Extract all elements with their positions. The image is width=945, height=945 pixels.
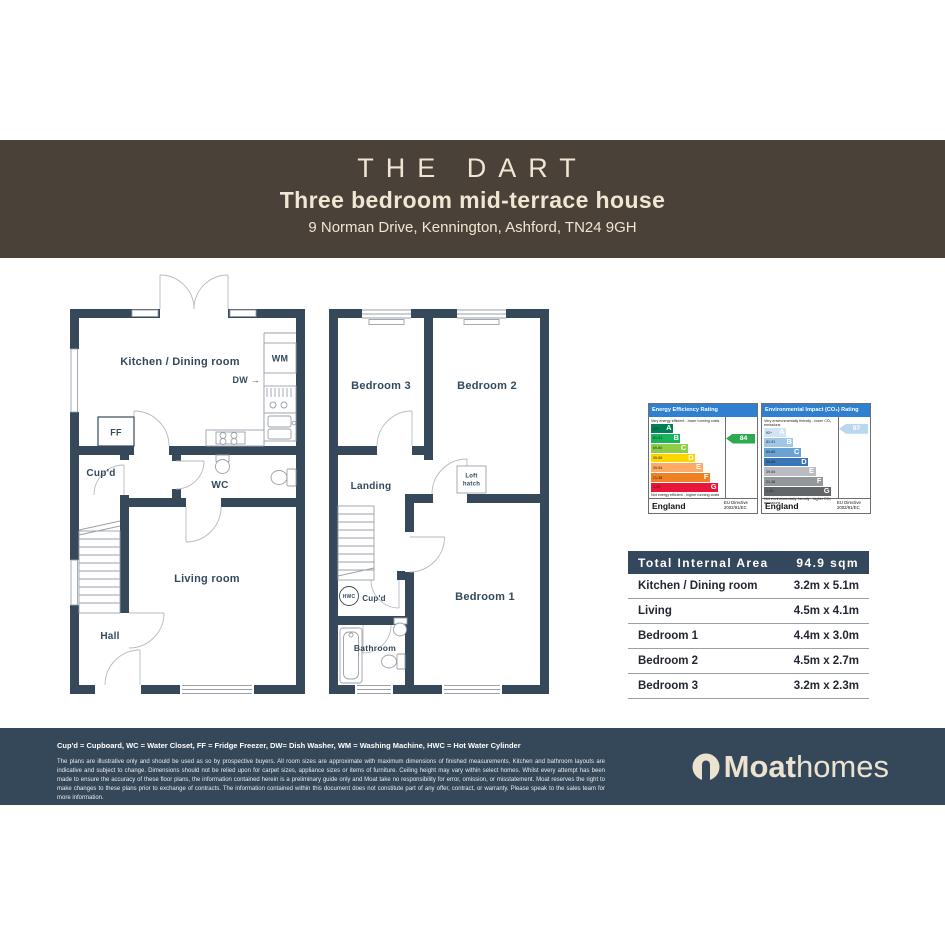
wc-toilet: [287, 469, 296, 486]
staircase: [79, 521, 120, 613]
area-table-header: Total Internal Area 94.9 sqm: [628, 551, 869, 574]
epc-band-b: 81-91B: [651, 434, 680, 443]
floorplan-page: THE DART Three bedroom mid-terrace house…: [0, 0, 945, 945]
room-label-bedroom1: Bedroom 1: [455, 591, 515, 603]
hot-water-cylinder: HWC: [340, 587, 359, 606]
epc-environmental-chart: Environmental Impact (CO₂) Rating Very e…: [761, 403, 871, 514]
loft-hatch: Loft hatch: [457, 466, 486, 493]
epc-band-c: 69-80C: [651, 444, 688, 453]
epc-env-directive: EU Directive 2002/91/EC: [837, 501, 867, 511]
moat-logo-icon: [691, 752, 721, 782]
table-row: Bedroom 1 4.4m x 3.0m: [628, 624, 869, 649]
abbreviation-legend: Cup'd = Cupboard, WC = Water Closet, FF …: [57, 741, 521, 750]
french-doors: [160, 275, 228, 309]
epc-band-e: 39-54E: [651, 463, 703, 472]
epc-energy-current-rating: 84: [726, 434, 755, 444]
epc-charts: Energy Efficiency Rating Very energy eff…: [648, 403, 871, 514]
epc-energy-bottom-caption: Not energy efficient - higher running co…: [651, 493, 725, 497]
total-area-value: 94.9 sqm: [796, 556, 859, 570]
room-label-kitchen-dining: Kitchen / Dining room: [120, 356, 240, 368]
epc-band-d: 55-68D: [764, 458, 808, 467]
room-label-living: Living room: [174, 573, 240, 585]
room-label-wc: WC: [211, 480, 228, 491]
room-label-landing: Landing: [351, 481, 392, 492]
dishwasher: [264, 386, 296, 413]
bathroom-toilet: [397, 654, 405, 669]
label-fridge-freezer: FF: [110, 428, 122, 438]
table-row: Living 4.5m x 4.1m: [628, 599, 869, 624]
epc-band-e: 39-54E: [764, 467, 816, 476]
kitchen-sink: [264, 413, 296, 441]
footer-band: Cup'd = Cupboard, WC = Water Closet, FF …: [0, 728, 945, 805]
table-row: Bedroom 3 3.2m x 2.3m: [628, 674, 869, 699]
page-subtitle: Three bedroom mid-terrace house: [0, 187, 945, 214]
area-table: Total Internal Area 94.9 sqm Kitchen / D…: [628, 551, 869, 699]
svg-text:Loft: Loft: [465, 474, 477, 480]
room-label-hall: Hall: [100, 631, 119, 642]
room-label-cupboard: Cup'd: [86, 468, 115, 479]
page-title: THE DART: [0, 153, 945, 184]
logo-word-moat: Moat: [724, 751, 796, 783]
epc-band-g: 1-20G: [764, 487, 831, 496]
door-sidelight: [230, 310, 256, 317]
svg-text:hatch: hatch: [463, 482, 480, 488]
header-band: THE DART Three bedroom mid-terrace house…: [0, 140, 945, 258]
logo-word-homes: homes: [796, 751, 889, 783]
table-row: Bedroom 2 4.5m x 2.7m: [628, 649, 869, 674]
page-address: 9 Norman Drive, Kennington, Ashford, TN2…: [0, 219, 945, 236]
svg-text:HWC: HWC: [343, 594, 356, 600]
epc-band-d: 55-68D: [651, 454, 695, 463]
label-dishwasher: DW →: [233, 375, 261, 385]
epc-band-f: 21-38F: [651, 473, 710, 482]
ground-floor-plan: Kitchen / Dining room WM DW → FF Cup'd W…: [68, 243, 308, 695]
epc-energy-top-caption: Very energy efficient - lower running co…: [651, 419, 725, 423]
epc-env-current-rating: 97: [839, 424, 868, 434]
room-label-cupboard-first: Cup'd: [362, 594, 386, 603]
first-floor-plan: Loft hatch HWC Bedroom 3 Bedroom 2 Landi…: [327, 283, 551, 695]
epc-energy-chart: Energy Efficiency Rating Very energy eff…: [648, 403, 758, 514]
epc-energy-title: Energy Efficiency Rating: [649, 404, 757, 417]
kitchen-fixtures: [98, 333, 296, 446]
room-label-bedroom3: Bedroom 3: [351, 380, 411, 392]
total-area-label: Total Internal Area: [638, 556, 769, 570]
epc-env-country: England: [765, 501, 799, 511]
door-sidelight: [132, 310, 158, 317]
disclaimer-text: The plans are illustrative only and shou…: [57, 758, 605, 803]
moat-homes-logo: Moathomes: [691, 751, 889, 783]
staircase-first: [338, 506, 374, 580]
epc-band-c: 69-80C: [764, 448, 801, 457]
epc-env-top-caption: Very environmentally friendly - lower CO…: [764, 419, 838, 427]
epc-band-f: 21-38F: [764, 477, 823, 486]
epc-env-title: Environmental Impact (CO₂) Rating: [762, 404, 870, 417]
hob: [206, 430, 264, 446]
epc-energy-country: England: [652, 501, 686, 511]
room-label-bedroom2: Bedroom 2: [457, 380, 517, 392]
epc-band-b: 81-91B: [764, 438, 793, 447]
epc-band-a: 92+A: [651, 424, 673, 433]
epc-band-g: 1-20G: [651, 483, 718, 492]
table-row: Kitchen / Dining room 3.2m x 5.1m: [628, 574, 869, 599]
first-interior-walls: [338, 318, 540, 685]
room-label-bathroom: Bathroom: [354, 643, 396, 653]
epc-energy-directive: EU Directive 2002/91/EC: [724, 501, 754, 511]
label-washing-machine: WM: [272, 354, 289, 364]
epc-band-a: 92+A: [764, 428, 786, 437]
